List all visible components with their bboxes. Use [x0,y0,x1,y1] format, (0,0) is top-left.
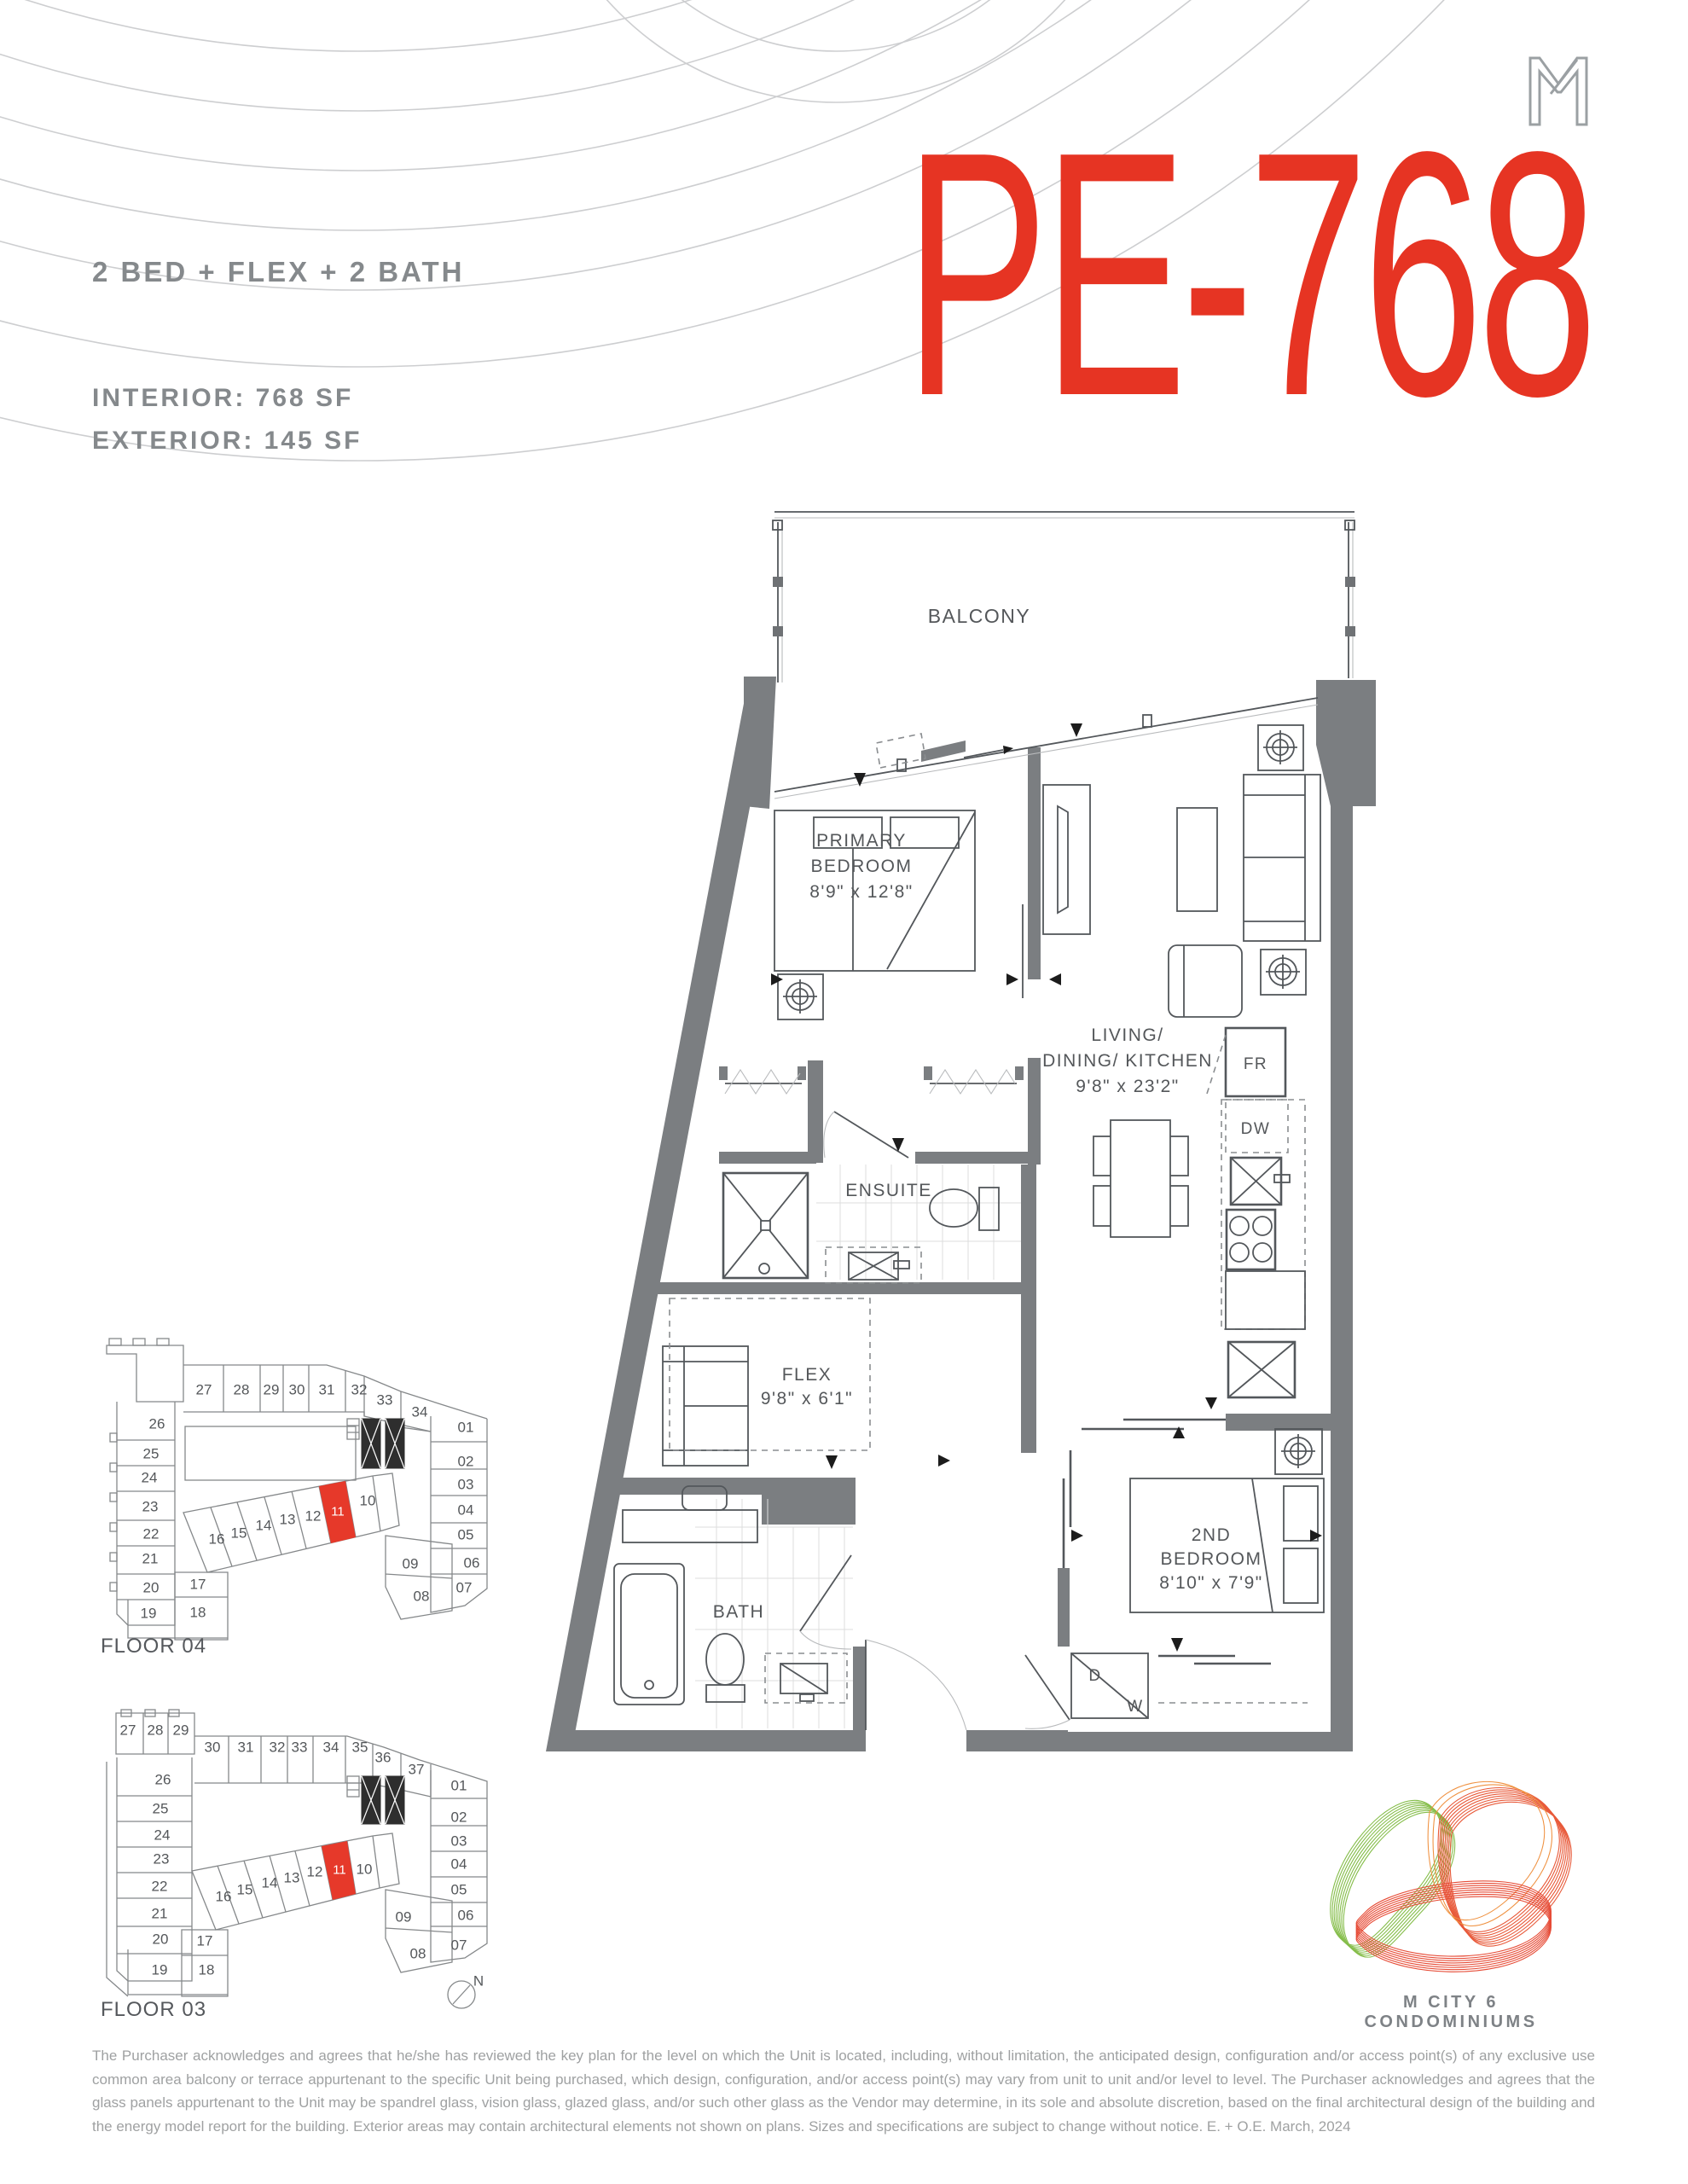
keyplan-unit-12: 12 [307,1864,323,1880]
keyplan-unit-13: 13 [284,1870,300,1886]
keyplan-unit-27: 27 [196,1382,212,1398]
keyplan-floor-04: 2728293031323334010203040506070809262524… [85,1331,512,1659]
keyplan-unit-29: 29 [173,1722,189,1739]
second-bedroom-label: 2ND [1192,1525,1232,1545]
keyplan-unit-20: 20 [153,1931,169,1948]
keyplan-unit-28: 28 [148,1722,164,1739]
flex-label: FLEX [782,1365,832,1385]
keyplan-unit-24: 24 [154,1827,171,1844]
keyplan-unit-22: 22 [152,1879,168,1895]
floor-04-label: FLOOR 04 [101,1635,206,1658]
floor-03-label: FLOOR 03 [101,1998,206,2022]
balcony-railing [773,512,1355,682]
unit-type-heading: 2 BED + FLEX + 2 BATH [92,256,464,288]
keyplan-unit-32: 32 [270,1740,286,1756]
keyplan-unit-08: 08 [414,1589,430,1605]
keyplan-unit-23: 23 [154,1851,170,1867]
keyplan-unit-18: 18 [190,1605,206,1621]
keyplan-unit-15: 15 [231,1525,247,1542]
keyplan-unit-01: 01 [451,1778,467,1794]
keyplan-unit-02: 02 [451,1809,467,1826]
keyplan-unit-33: 33 [292,1740,308,1756]
keyplan-unit-15: 15 [237,1882,253,1898]
living-label: LIVING/ [1091,1025,1163,1045]
keyplan-unit-04: 04 [451,1856,467,1873]
keyplan-unit-10: 10 [360,1493,376,1509]
keyplan-unit-16: 16 [216,1889,232,1905]
svg-text:9'8" x 23'2": 9'8" x 23'2" [1076,1077,1180,1096]
keyplan-unit-32: 32 [351,1382,368,1398]
keyplan-unit-09: 09 [403,1556,419,1572]
interior-area: INTERIOR: 768 SF [92,384,353,413]
keyplan-unit-31: 31 [238,1740,254,1756]
keyplan-unit-28: 28 [234,1382,250,1398]
keyplan-unit-16: 16 [209,1531,225,1548]
keyplan-unit-10: 10 [357,1862,373,1878]
keyplan-unit-34: 34 [323,1740,339,1756]
keyplan-unit-25: 25 [153,1801,169,1817]
keyplan-unit-06: 06 [458,1908,474,1924]
ensuite-label: ENSUITE [845,1181,932,1200]
keyplan-floor-03: N 27282930313233343536370102030405060708… [85,1676,525,2011]
keyplan-unit-03: 03 [451,1833,467,1850]
keyplan-unit-27: 27 [120,1722,136,1739]
mcity-logo-title: M CITY 6 CONDOMINIUMS [1314,1993,1588,2032]
keyplan-unit-29: 29 [264,1382,280,1398]
dryer-label: D [1088,1667,1101,1685]
keyplan-unit-30: 30 [289,1382,305,1398]
svg-text:9'8" x 6'1": 9'8" x 6'1" [761,1389,853,1409]
svg-text:8'10" x 7'9": 8'10" x 7'9" [1159,1573,1263,1593]
keyplan-unit-33: 33 [377,1392,393,1409]
keyplan-unit-01: 01 [458,1420,474,1436]
keyplan-unit-19: 19 [141,1606,157,1622]
unit-title: PE-768 [904,101,1592,449]
keyplan-unit-24: 24 [142,1470,158,1486]
keyplan-unit-37: 37 [409,1762,425,1778]
keyplan-unit-03: 03 [458,1477,474,1493]
exterior-area: EXTERIOR: 145 SF [92,427,362,456]
keyplan-unit-25: 25 [143,1446,160,1462]
svg-text:DINING/ KITCHEN: DINING/ KITCHEN [1042,1051,1213,1071]
svg-text:BEDROOM: BEDROOM [1160,1549,1262,1569]
balcony-label: BALCONY [928,605,1030,627]
legal-disclaimer: The Purchaser acknowledges and agrees th… [92,2044,1595,2138]
keyplan-unit-07: 07 [451,1937,467,1954]
dishwasher-label: DW [1241,1120,1271,1138]
keyplan-unit-35: 35 [352,1740,368,1756]
keyplan-unit-14: 14 [256,1518,272,1534]
keyplan-unit-18: 18 [199,1962,215,1978]
keyplan-unit-21: 21 [152,1906,168,1922]
keyplan-unit-36: 36 [375,1750,392,1766]
floor-plan: BALCONY PRIMARY BEDROOM 8'9" x 12'8" LIV… [512,478,1450,1792]
floor-tiles [695,1165,1021,1728]
fridge-label: FR [1244,1055,1267,1073]
keyplan-unit-09: 09 [396,1909,412,1926]
keyplan-unit-20: 20 [143,1580,160,1596]
keyplan-unit-02: 02 [458,1454,474,1470]
bath-label: BATH [713,1602,764,1622]
keyplan-unit-12: 12 [305,1508,322,1525]
keyplan-unit-14: 14 [262,1875,278,1891]
keyplan-unit-17: 17 [190,1577,206,1593]
keyplan-unit-04: 04 [458,1502,474,1519]
svg-text:8'9" x 12'8": 8'9" x 12'8" [809,882,914,902]
keyplan-unit-05: 05 [458,1527,474,1543]
keyplan-unit-07: 07 [456,1580,473,1596]
keyplan-unit-34: 34 [412,1404,428,1420]
keyplan-unit-05: 05 [451,1882,467,1898]
keyplan-unit-23: 23 [142,1499,159,1515]
keyplan-unit-22: 22 [143,1526,160,1542]
keyplan-04-unit-numbers: 2728293031323334010203040506070809262524… [141,1382,480,1622]
primary-bedroom-label: PRIMARY [816,831,907,851]
keyplan-unit-21: 21 [142,1551,159,1567]
mcity-knot-logo [1314,1764,1588,1988]
compass-north-label: N [473,1973,484,1989]
keyplan-unit-06: 06 [464,1555,480,1571]
keyplan-unit-30: 30 [205,1740,221,1756]
keyplan-unit-26: 26 [149,1416,165,1432]
washer-label: W [1127,1698,1143,1716]
svg-text:BEDROOM: BEDROOM [810,857,912,876]
keyplan-unit-26: 26 [155,1772,171,1788]
keyplan-unit-13: 13 [280,1512,296,1528]
keyplan-unit-17: 17 [197,1933,213,1949]
window-band [774,698,1318,799]
keyplan-unit-11: 11 [331,1505,345,1519]
elevator-core [362,1419,404,1468]
keyplan-unit-08: 08 [410,1946,426,1962]
elevator-core [362,1776,404,1824]
keyplan-unit-11: 11 [333,1863,346,1878]
keyplan-unit-19: 19 [152,1962,168,1978]
keyplan-unit-31: 31 [319,1382,335,1398]
